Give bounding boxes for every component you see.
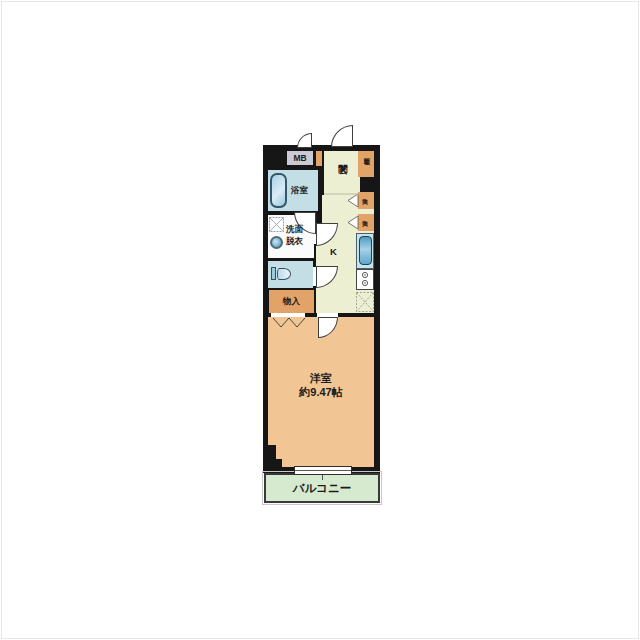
washroom-label: 洗面 脱衣 xyxy=(286,223,303,248)
closet-bifold-door-icon xyxy=(273,318,305,327)
storage-label: 物入 xyxy=(269,290,314,313)
main-room-label: 洋室 約9.47帖 xyxy=(268,371,374,400)
washroom-label-line2: 脱衣 xyxy=(286,235,303,247)
sliding-window-icon xyxy=(295,467,352,481)
meter-box-label: MB xyxy=(289,153,311,163)
bathroom-label: 浴室 xyxy=(291,185,308,197)
washing-machine-pan-icon xyxy=(270,218,284,232)
washroom-label-line1: 洗面 xyxy=(286,223,303,235)
storage-fold-door-icon xyxy=(348,194,358,207)
main-room-name: 洋室 xyxy=(268,371,374,385)
entrance-label: 玄関 xyxy=(336,156,349,158)
main-room-area: 約9.47帖 xyxy=(268,385,374,399)
stove-burners-icon xyxy=(362,272,367,285)
kitchen-label: K xyxy=(330,246,337,257)
lineart-overlay xyxy=(0,0,640,640)
storage-fold-door-icon xyxy=(348,216,358,229)
refrigerator-hatch-icon xyxy=(357,293,374,312)
floor-plan-image: バルコニー xyxy=(0,0,640,640)
